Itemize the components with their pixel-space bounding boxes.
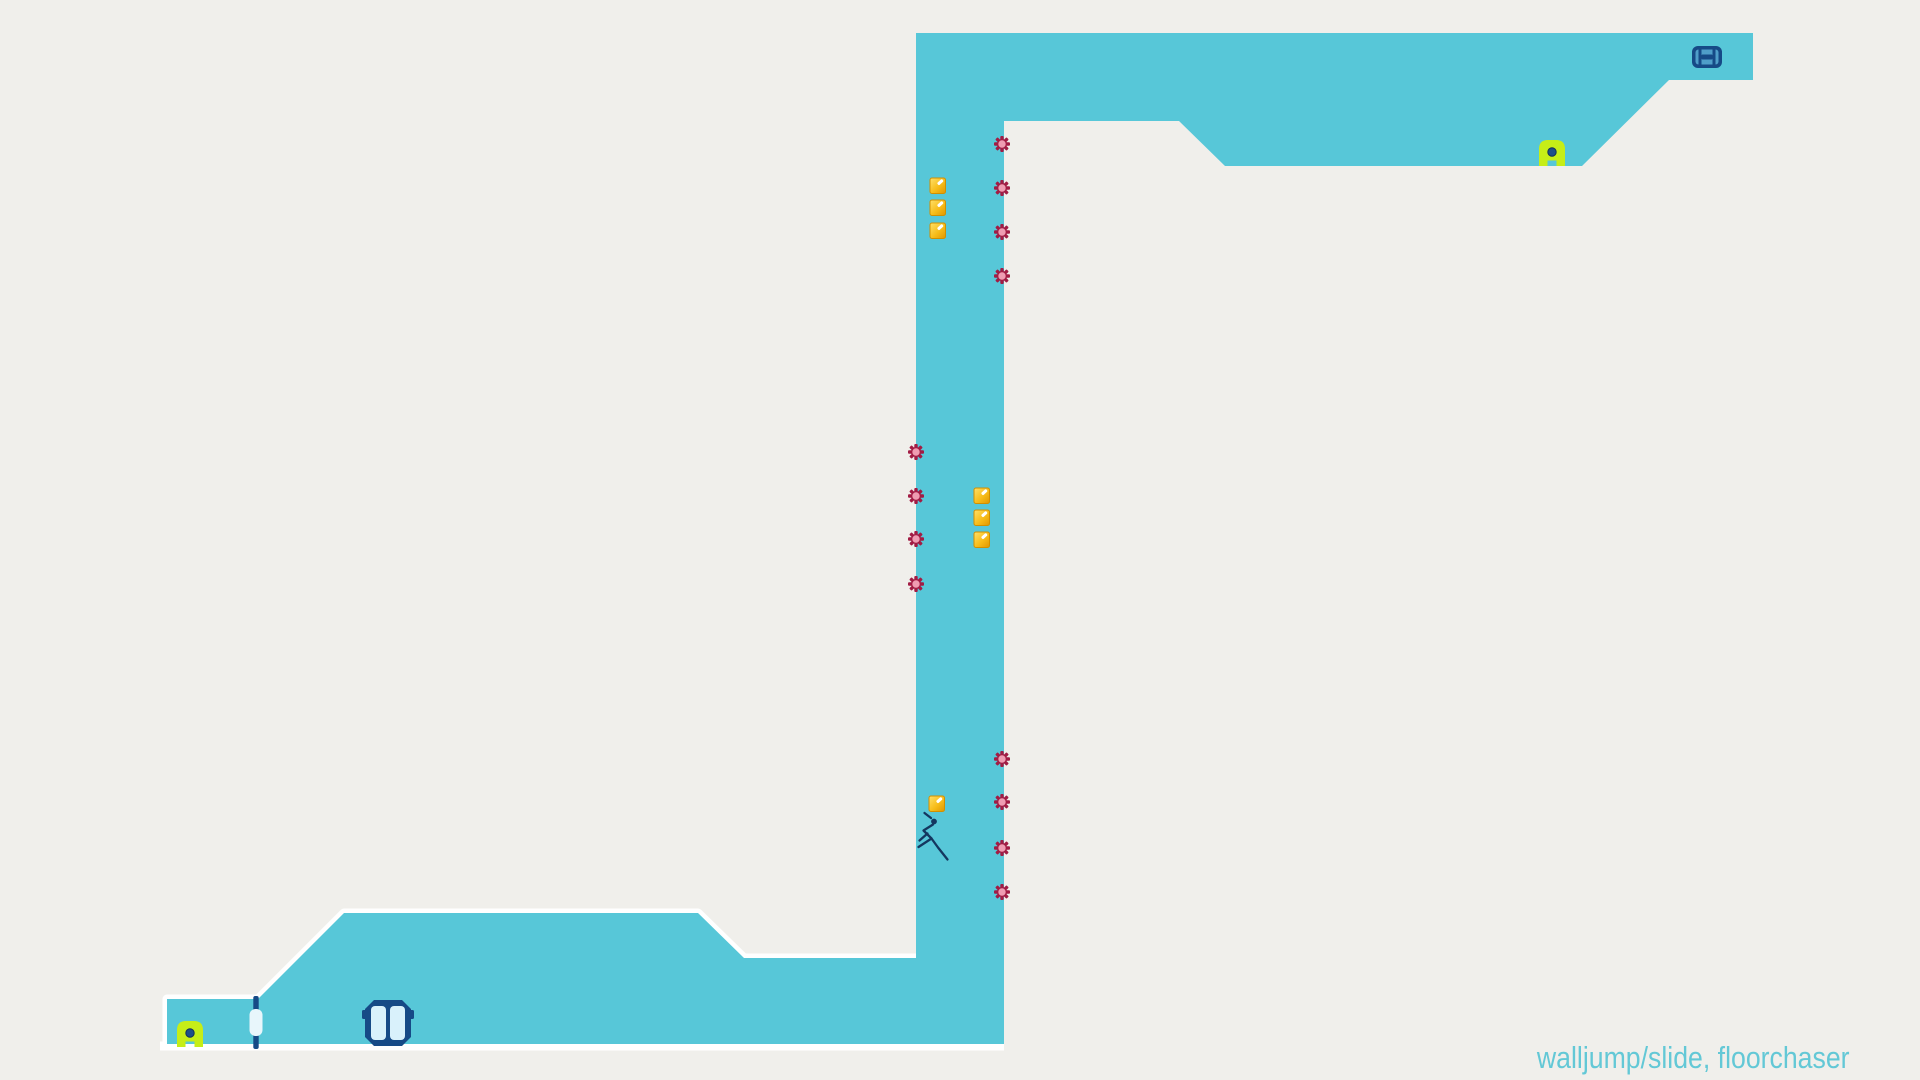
mine xyxy=(908,531,924,547)
mine xyxy=(908,444,924,460)
mine xyxy=(994,180,1010,196)
exit-door xyxy=(362,1000,414,1046)
mine xyxy=(994,794,1010,810)
mine xyxy=(908,576,924,592)
gold xyxy=(974,510,990,526)
mine xyxy=(994,884,1010,900)
terrain xyxy=(167,33,1753,1044)
gold xyxy=(974,532,990,548)
game-viewport[interactable]: walljump/slide, floorchaser xyxy=(0,0,1920,1080)
gold xyxy=(930,223,946,239)
mine xyxy=(994,840,1010,856)
mine xyxy=(994,136,1010,152)
exit-switch-icon xyxy=(1692,46,1722,68)
mine xyxy=(994,268,1010,284)
level-caption: walljump/slide, floorchaser xyxy=(1537,1041,1850,1075)
mine xyxy=(908,488,924,504)
mine xyxy=(994,751,1010,767)
gold xyxy=(930,200,946,216)
gold xyxy=(930,178,946,194)
gold xyxy=(974,488,990,504)
game-canvas[interactable] xyxy=(0,0,1920,1080)
mine xyxy=(994,224,1010,240)
gold xyxy=(929,796,945,812)
